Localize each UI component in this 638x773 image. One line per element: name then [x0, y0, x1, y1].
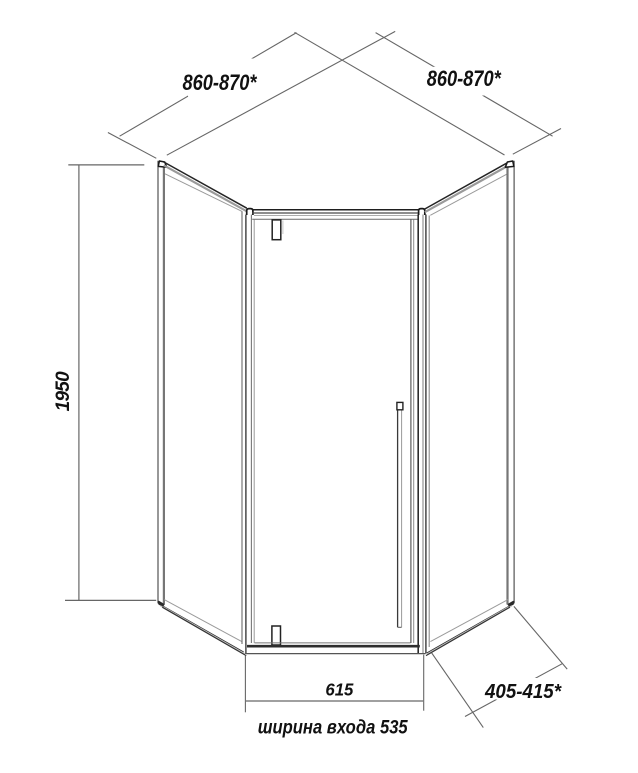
svg-text:ширина входа 535: ширина входа 535	[258, 717, 408, 738]
svg-text:860-870*: 860-870*	[427, 66, 502, 91]
svg-text:860-870*: 860-870*	[183, 70, 258, 95]
svg-text:405-415*: 405-415*	[484, 680, 562, 703]
svg-text:615: 615	[325, 679, 353, 699]
svg-text:1950: 1950	[53, 371, 74, 411]
